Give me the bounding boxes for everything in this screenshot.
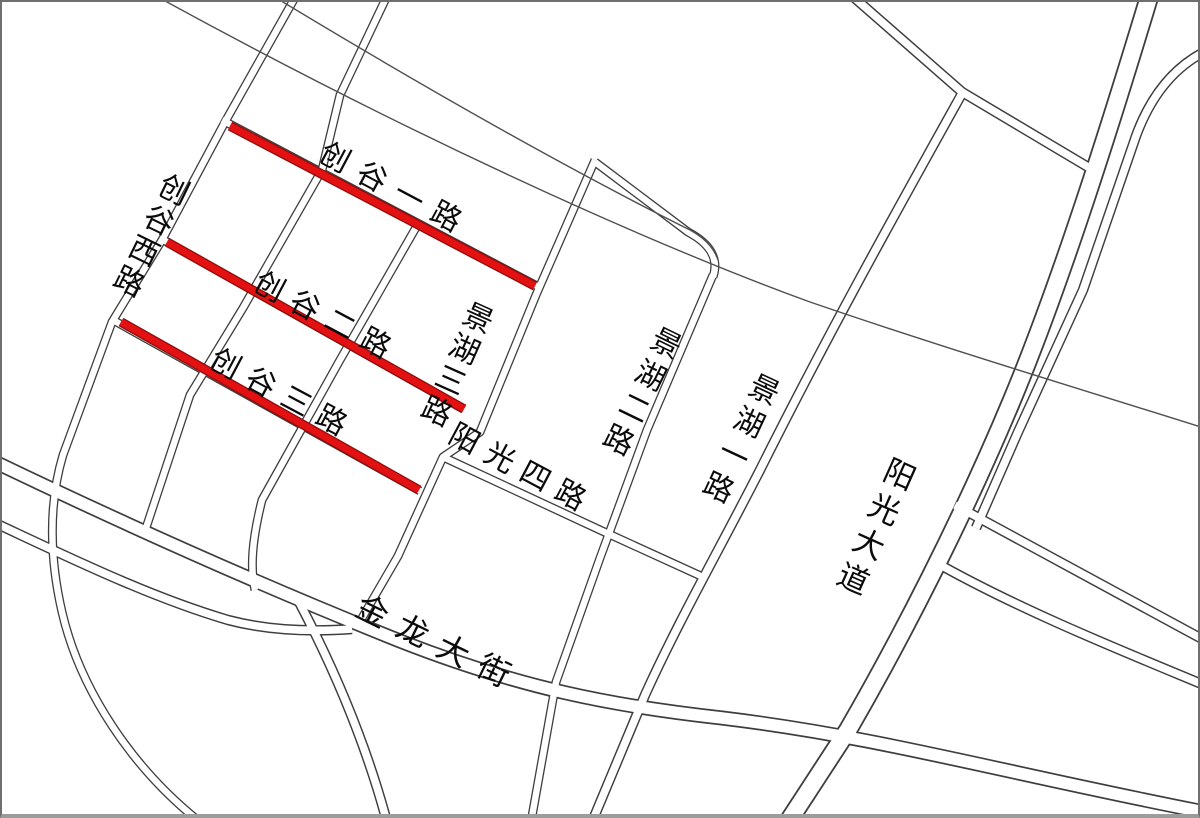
street-map-canvas: 创谷一路创谷西路创谷二路创谷三路景湖三路阳光四路景湖二路景湖一路阳光大道金龙大街 bbox=[0, 0, 1200, 818]
highlight-core-chuanggu-er-lu bbox=[167, 242, 464, 409]
diagonal-line-2 bbox=[273, 0, 718, 260]
road-fills bbox=[0, 0, 1200, 818]
highlight-core-chuanggu-yi-lu bbox=[230, 126, 535, 286]
road-network-drawing bbox=[0, 0, 1200, 818]
